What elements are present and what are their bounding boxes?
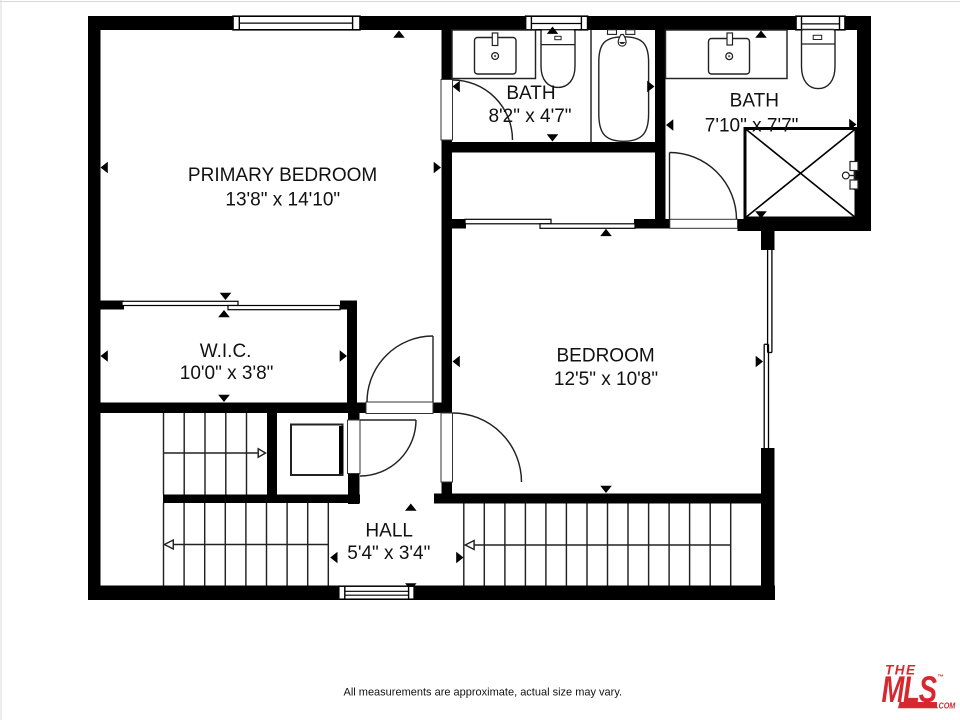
svg-text:8'2" x 4'7": 8'2" x 4'7" [488,106,571,127]
svg-text:BEDROOM: BEDROOM [557,346,655,367]
svg-text:™: ™ [938,674,945,681]
svg-text:PRIMARY BEDROOM: PRIMARY BEDROOM [188,165,377,186]
svg-text:10'0" x 3'8": 10'0" x 3'8" [180,363,274,384]
svg-text:7'10" x 7'7": 7'10" x 7'7" [705,116,799,137]
svg-text:12'5" x 10'8": 12'5" x 10'8" [554,369,658,390]
svg-text:W.I.C.: W.I.C. [200,341,252,362]
svg-text:BATH: BATH [506,83,555,104]
svg-text:HALL: HALL [365,520,413,541]
svg-text:5'4" x 3'4": 5'4" x 3'4" [347,543,430,564]
svg-text:13'8" x 14'10": 13'8" x 14'10" [225,190,340,211]
svg-text:.COM: .COM [937,701,956,710]
svg-text:All measurements are approxima: All measurements are approximate, actual… [344,687,623,699]
svg-text:BATH: BATH [730,91,779,112]
